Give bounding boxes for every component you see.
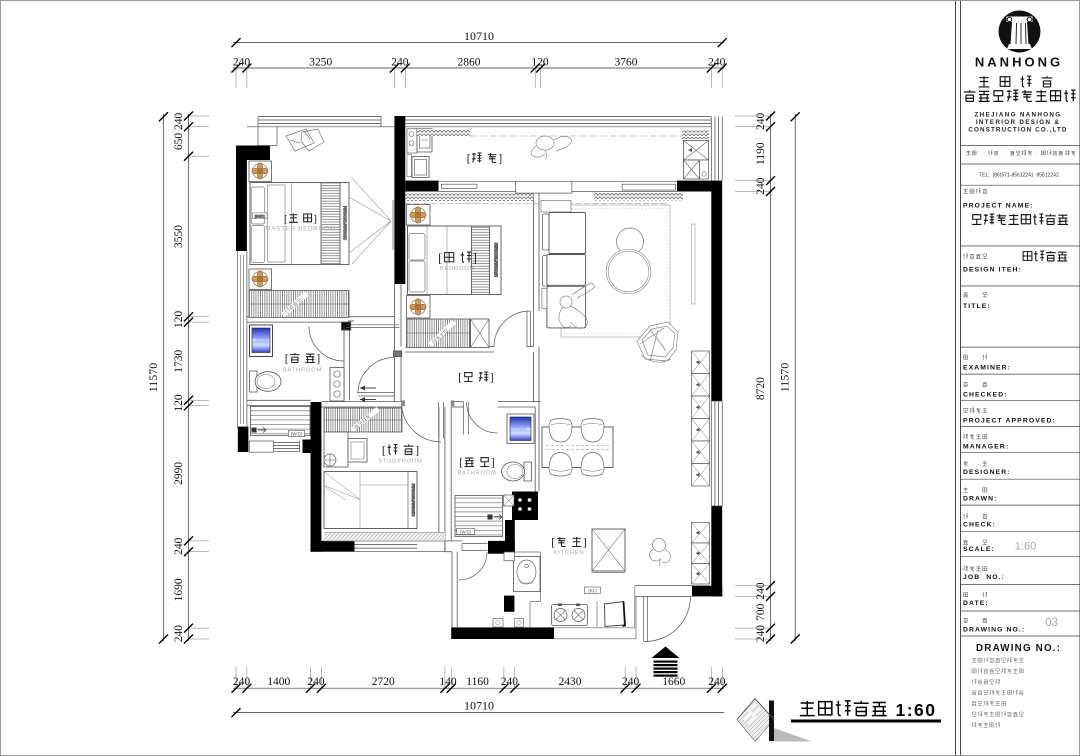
svg-text:240: 240 [708,57,726,69]
svg-text:INTERIOR DESIGN &: INTERIOR DESIGN & [976,119,1060,126]
svg-text:1730: 1730 [173,349,185,372]
svg-text:120: 120 [173,394,185,412]
svg-text:[: [ [458,372,462,384]
svg-text:CHECK:: CHECK: [963,522,996,529]
svg-text:650: 650 [173,133,185,151]
svg-text:8720: 8720 [755,377,767,400]
svg-text:140: 140 [439,676,457,688]
svg-text:]: ] [583,537,587,549]
svg-text:03: 03 [1045,617,1058,629]
svg-text:[: [ [459,457,463,469]
svg-text:240: 240 [501,676,519,688]
svg-text:[RF]: [RF] [588,588,596,593]
svg-text:[W/D]: [W/D] [291,432,302,437]
svg-text:240: 240 [173,113,185,130]
svg-text:240: 240 [622,676,640,688]
svg-text:]: ] [498,153,502,165]
svg-text:11570: 11570 [778,363,792,393]
svg-text:TEL: (86)571-85612241 858122: TEL: (86)571-85612241 85812242 [979,173,1059,179]
svg-text:[: [ [382,443,386,457]
svg-text:2430: 2430 [559,676,582,688]
svg-text:240: 240 [233,676,251,688]
svg-text:KITCHEN: KITCHEN [554,550,585,556]
svg-text:·: · [983,153,985,158]
svg-text:MANAGER:: MANAGER: [963,444,1009,451]
svg-text:240: 240 [755,625,767,643]
svg-text:[BED]: [BED] [255,215,265,219]
svg-text:·: · [1005,153,1007,158]
svg-text:CHECKED:: CHECKED: [963,391,1008,398]
svg-text:CONSTRUCTION CO.,LTD: CONSTRUCTION CO.,LTD [968,127,1067,134]
svg-text:[W/D]: [W/D] [460,529,471,534]
svg-text:1:60: 1:60 [1015,541,1036,553]
svg-text:120: 120 [173,311,185,329]
svg-text:240: 240 [307,676,325,688]
svg-text:ZHEJIANG NANHONG: ZHEJIANG NANHONG [975,112,1062,119]
svg-text:240: 240 [755,113,767,130]
svg-text:2990: 2990 [173,462,185,485]
svg-text:MASTER BEDROOM: MASTER BEDROOM [265,226,335,233]
svg-text:1800MM*2000MM: 1800MM*2000MM [342,205,347,240]
svg-text:·: · [1036,153,1038,158]
svg-text:[: [ [438,251,442,265]
svg-text:]: ] [415,443,419,457]
svg-text:240: 240 [755,177,767,195]
svg-text:1400: 1400 [267,676,290,688]
svg-text:]: ] [473,251,477,265]
svg-text:]: ] [313,213,317,225]
svg-text:[: [ [284,213,288,225]
svg-text:10710: 10710 [464,29,494,43]
svg-text:]: ] [490,372,494,384]
svg-text:NANHONG: NANHONG [975,55,1063,70]
svg-text:1500MM*2000MM: 1500MM*2000MM [494,242,499,277]
svg-text:240: 240 [391,57,409,69]
svg-text:240: 240 [755,582,767,600]
svg-text:STUDYROOM: STUDYROOM [378,459,423,465]
svg-text:PROJECT APPROVED:: PROJECT APPROVED: [963,418,1056,425]
svg-text:DRAWING NO.:: DRAWING NO.: [976,643,1061,654]
svg-text:2860: 2860 [458,57,481,69]
svg-text:]: ] [491,457,495,469]
svg-text:TITLE:: TITLE: [963,303,991,310]
svg-text:JOB NO.:: JOB NO.: [963,574,1005,581]
svg-text:120: 120 [531,57,549,69]
svg-text:1160: 1160 [466,676,489,688]
svg-text:DRAWN:: DRAWN: [963,495,998,502]
svg-text:240: 240 [233,57,251,69]
svg-text:3760: 3760 [615,57,638,69]
svg-text:1:60: 1:60 [895,700,936,720]
svg-text:EXAMINER:: EXAMINER: [963,364,1011,371]
svg-text:3550: 3550 [173,225,185,248]
svg-text:BEDROOM: BEDROOM [440,266,475,272]
svg-text:1190: 1190 [755,142,767,165]
svg-text:PROJECT NAME:: PROJECT NAME: [963,203,1034,210]
svg-text:SCALE:: SCALE: [963,546,995,553]
svg-text:1690: 1690 [173,578,185,601]
svg-text:BATHROOM: BATHROOM [283,368,322,374]
svg-text:[: [ [285,353,289,365]
svg-text:1660: 1660 [662,676,685,688]
svg-text:DESIGNER:: DESIGNER: [963,469,1011,476]
svg-text:240: 240 [173,537,185,555]
svg-text:DRAWING NO.:: DRAWING NO.: [963,626,1025,633]
svg-text:]: ] [316,353,320,365]
svg-text:240: 240 [708,676,726,688]
svg-text:2720: 2720 [372,676,395,688]
svg-text:1200MM*2000MM: 1200MM*2000MM [410,484,415,517]
svg-text:3250: 3250 [309,57,332,69]
svg-text:11570: 11570 [146,363,160,393]
svg-text:[: [ [467,153,471,165]
svg-text:DATE:: DATE: [963,600,989,607]
svg-text:240: 240 [173,625,185,643]
svg-text:700: 700 [755,603,767,621]
svg-text:10710: 10710 [464,698,494,712]
svg-text:DESIGN ITEH:: DESIGN ITEH: [963,267,1022,274]
svg-text:BATHROOM: BATHROOM [457,471,496,477]
svg-text:[: [ [551,537,555,549]
